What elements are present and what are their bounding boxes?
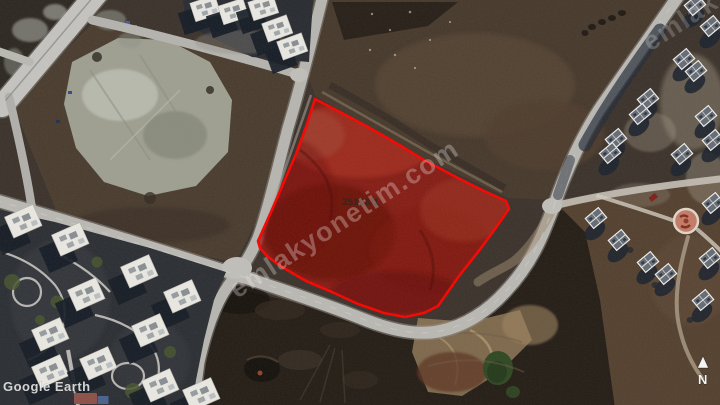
listing-satellite-screenshot: 35198/1 emlakyonetim.com emlakyonetim.co… <box>0 0 720 405</box>
google-earth-satellite-view: 35198/1 emlakyonetim.com emlakyonetim.co… <box>0 0 720 405</box>
svg-text:N: N <box>698 372 707 387</box>
google-earth-logo: Google Earth <box>3 379 91 394</box>
